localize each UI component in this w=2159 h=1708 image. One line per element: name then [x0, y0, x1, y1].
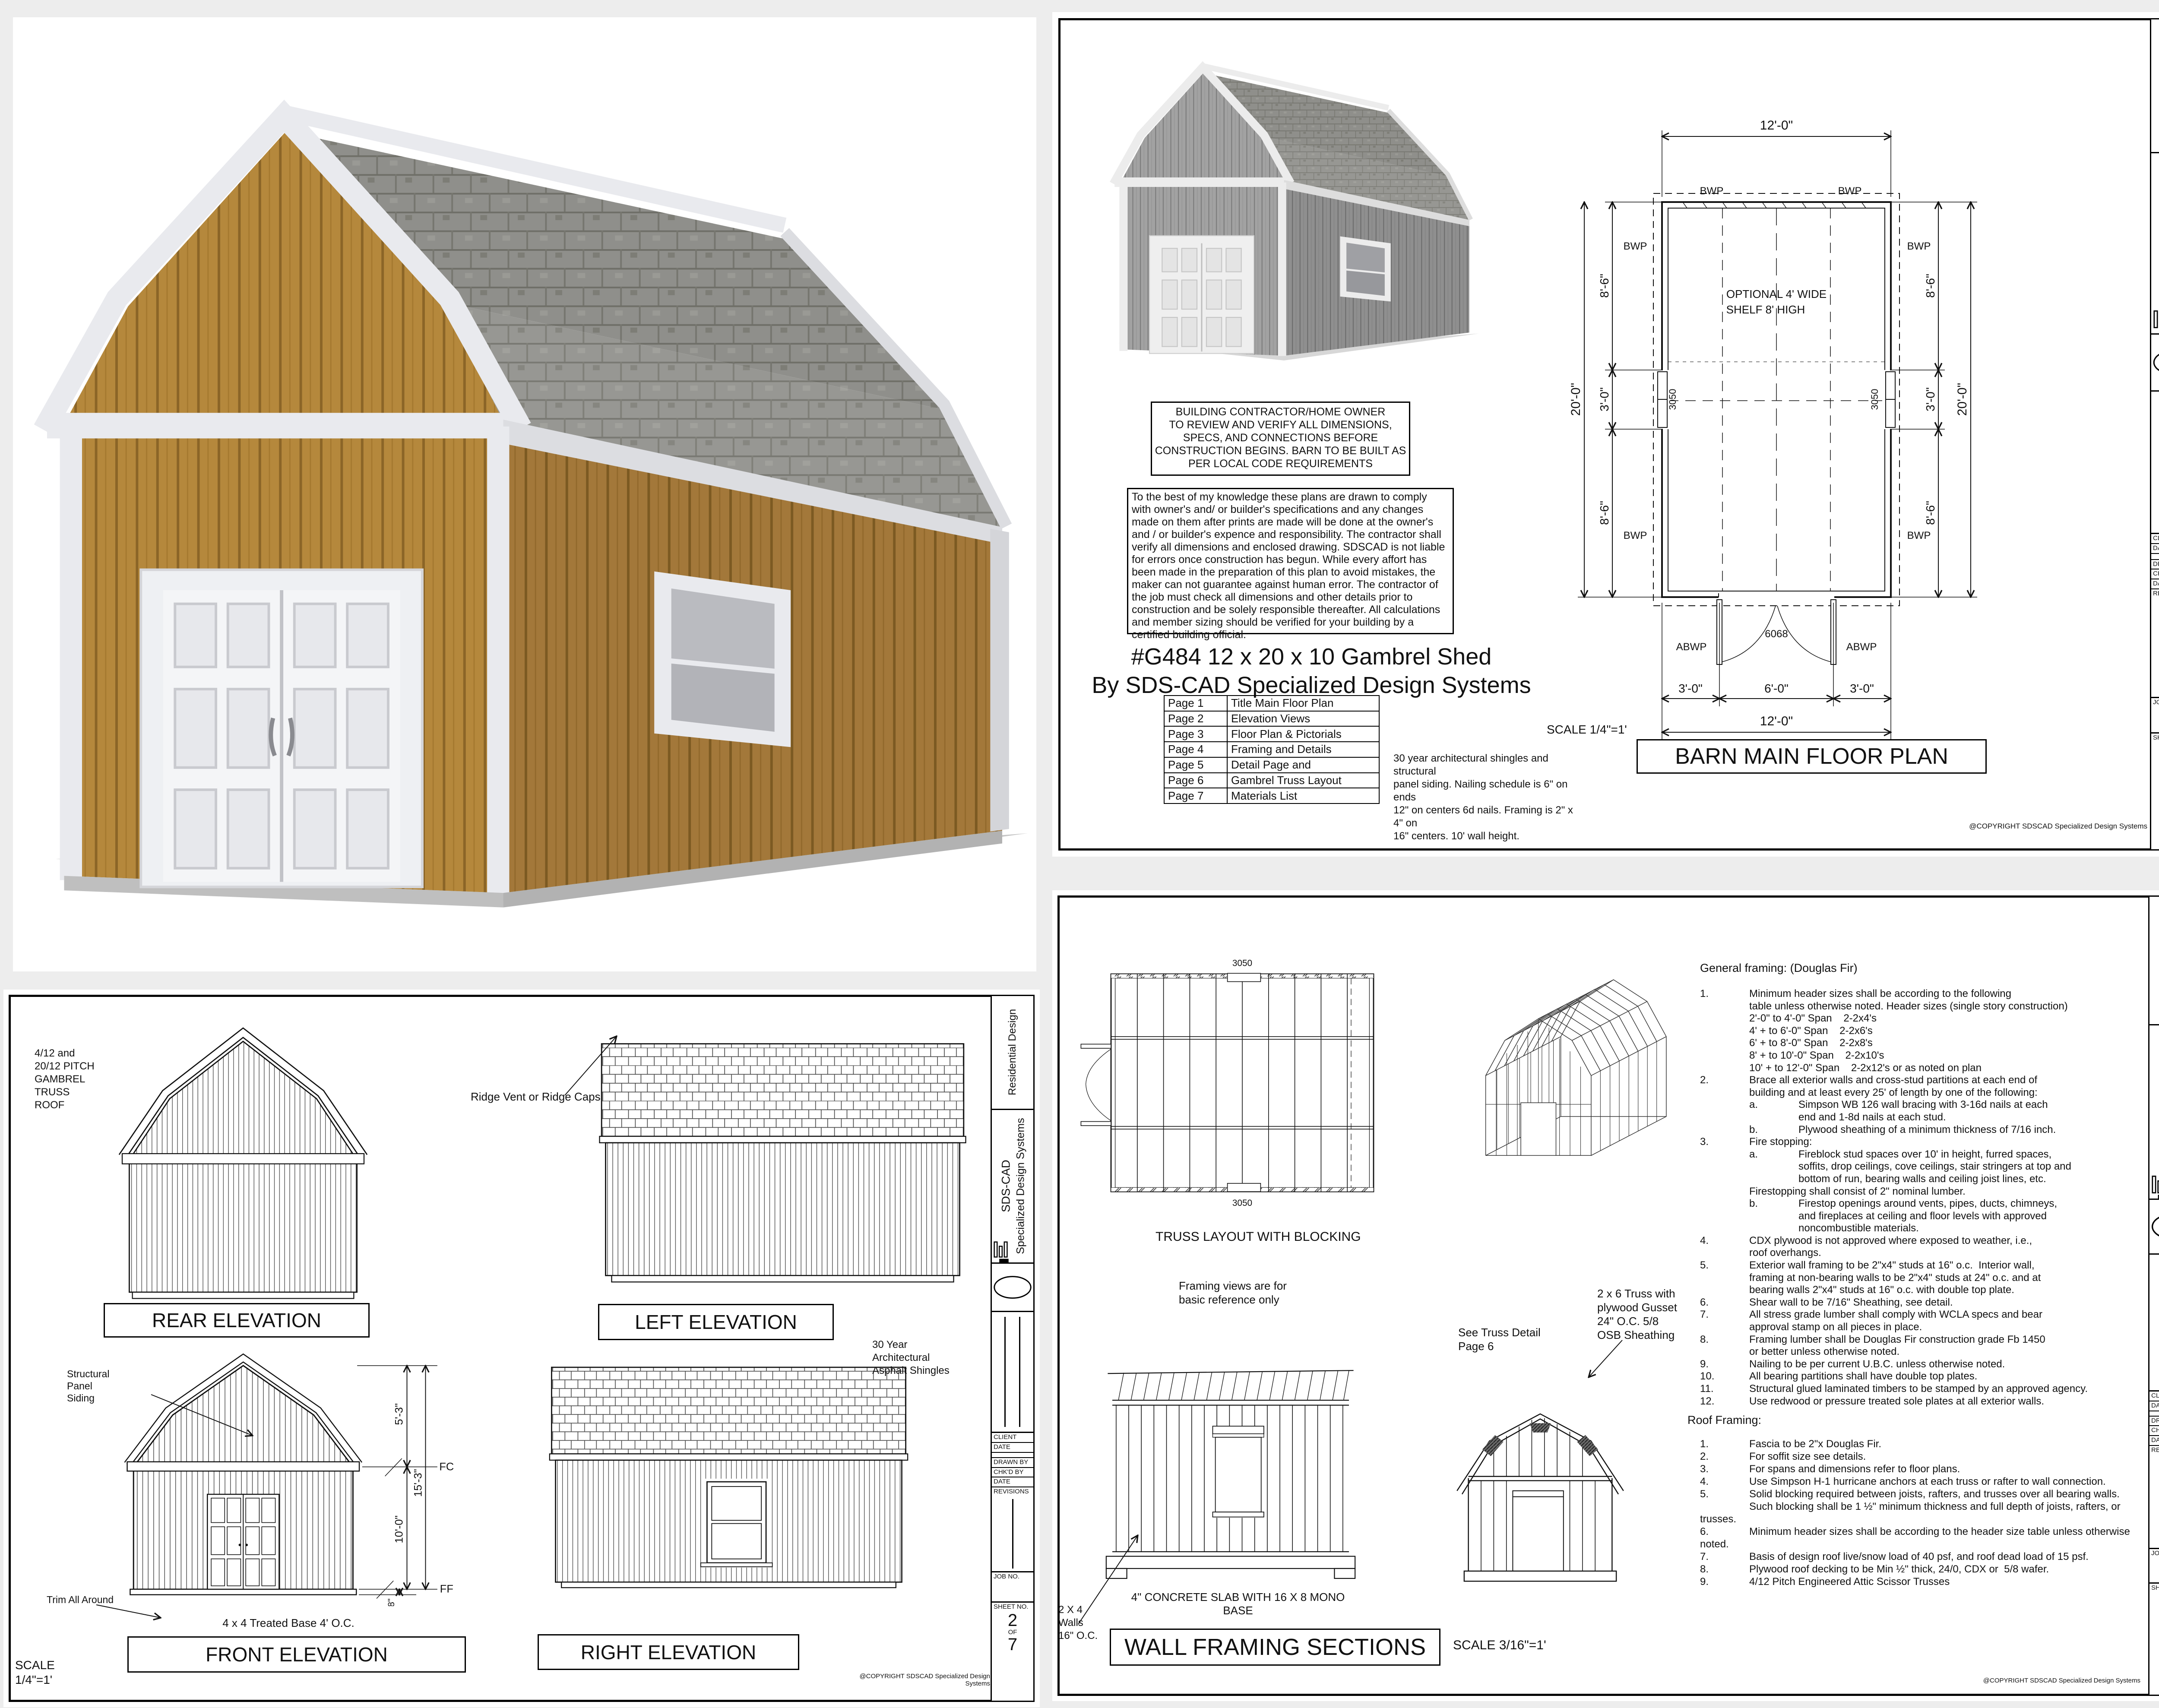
tb-field-client: CLIENT [992, 1433, 1033, 1443]
dim-seg: 8'-6" [1924, 501, 1937, 525]
bwp-label: BWP [1838, 185, 1862, 197]
page-index-row: Page 5 Detail Page and [1164, 757, 1379, 773]
shingle-note: 30 year architectural shingles and struc… [1393, 752, 1575, 843]
tb-field-sheetno: SHEET NO. [2151, 734, 2159, 743]
wall-framing-sections-title: WALL FRAMING SECTIONS [1110, 1629, 1440, 1666]
shelf-note-1: OPTIONAL 4' WIDE [1726, 288, 1827, 300]
right-elevation-label: RIGHT ELEVATION [538, 1634, 799, 1670]
tb-residential-label: Residential Design [1007, 1009, 1019, 1095]
sheet-of: OF [2150, 1610, 2159, 1617]
right-window [701, 1479, 772, 1568]
title-block-sheet2: Residential Design SDS-CAD Specialized D… [991, 995, 1035, 1702]
window-code: 3050 [1869, 389, 1880, 410]
dim-door: 3'-0" [1850, 682, 1874, 695]
window-code: 3050 [1667, 389, 1678, 410]
rear-elevation-drawing [92, 1015, 394, 1318]
plan-title-line1: #G484 12 x 20 x 10 Gambrel Shed [1095, 643, 1527, 670]
tb-field-sheetno: SHEET NO. [992, 1603, 1033, 1612]
copyright-sheet3: @COPYRIGHT SDSCAD Specialized Design Sys… [1950, 1677, 2140, 1684]
page-cell: Page 3 [1164, 726, 1227, 742]
tb-field-client: CLIENT [2151, 534, 2159, 544]
dim-seg: 3'-0" [1924, 387, 1937, 411]
copyright-sheet1: @COPYRIGHT SDSCAD Specialized Design Sys… [1969, 822, 2147, 831]
door-opening [1719, 593, 1834, 603]
page-index-row: Page 4 Framing and Details [1164, 742, 1379, 757]
sheet-number: 1 [2151, 743, 2159, 760]
shelf-note-2: SHELF 8' HIGH [1726, 303, 1805, 316]
sheet-number: 4 [2150, 1592, 2159, 1610]
general-framing-notes: 1. Minimum header sizes shall be accordi… [1700, 988, 2136, 1408]
dim-right-overall: 20'-0" [1955, 383, 1969, 416]
dim-seg: 8'-6" [1924, 274, 1937, 298]
left-elevation-label: LEFT ELEVATION [598, 1304, 834, 1340]
sheet-total: 7 [992, 1636, 1033, 1653]
bwp-label: BWP [1907, 240, 1931, 252]
page-title-cell: Elevation Views [1227, 711, 1379, 727]
render-card [13, 17, 1036, 971]
side-window [654, 572, 791, 747]
dim-seg: 8'-6" [1598, 274, 1611, 298]
tb-field-revisions: REVISIONS [2150, 1446, 2159, 1455]
page-title-cell: Materials List [1227, 788, 1379, 803]
truss-dim-top: 3050 [1232, 958, 1252, 968]
tb-field-drawn: DRAWN BY [992, 1458, 1033, 1468]
page-title-cell: Title Main Floor Plan [1227, 696, 1379, 711]
page-title-cell: Framing and Details [1227, 742, 1379, 757]
sheet-1-title-main-floor-plan: BUILDING CONTRACTOR/HOME OWNER TO REVIEW… [1052, 12, 2159, 857]
tb-field-date2: DATE [2151, 579, 2159, 589]
double-door [141, 570, 422, 887]
gusset-right [1577, 1435, 1598, 1456]
tb-field-job: JOB NO. [992, 1572, 1033, 1581]
tb-fields: CLIENT DATE DRAWN BY CHK'D BY DATE REVIS… [2151, 534, 2159, 698]
structural-panel-note: Structural Panel Siding [67, 1368, 109, 1404]
plan-scale: SCALE 1/4"=1' [1547, 723, 1627, 737]
scale-note-sheet3: SCALE 3/16"=1' [1453, 1638, 1546, 1653]
tb-sheetno: SHEET NO. 1 OF 7 [2151, 734, 2159, 849]
shed-3d-pictorial-gray [1102, 47, 1482, 364]
dim-15-3: 15'-3" [412, 1469, 424, 1497]
dim-8in: 8" [386, 1598, 396, 1606]
page-index-row: Page 6 Gambrel Truss Layout [1164, 773, 1379, 788]
plan-collage: BUILDING CONTRACTOR/HOME OWNER TO REVIEW… [0, 0, 2159, 1708]
contractor-note-box: BUILDING CONTRACTOR/HOME OWNER TO REVIEW… [1151, 402, 1410, 476]
truss-dim-bottom: 3050 [1232, 1198, 1252, 1208]
sds-logo [992, 1239, 1012, 1264]
door-code: 6068 [1765, 628, 1788, 640]
tb-stamp [2151, 335, 2159, 392]
asphalt-shingles-note: 30 Year Architectural Asphalt Shingles [872, 1338, 985, 1377]
shed-3d-render [13, 43, 1036, 933]
copyright-sheet2: @COPYRIGHT SDSCAD Specialized Design Sys… [835, 1673, 990, 1687]
tb-field-drawn: DRAWN BY [2151, 560, 2159, 570]
wall-framing-side-drawing [1086, 1351, 1375, 1588]
corner-trim-far [990, 529, 1009, 832]
dim-door: 6'-0" [1764, 682, 1789, 695]
bwp-label: BWP [1907, 530, 1931, 541]
tb-field-chkd: CHK'D BY [2150, 1426, 2159, 1436]
scale-note-sheet2: SCALE 1/4"=1' [15, 1658, 55, 1687]
page-title-cell: Detail Page and [1227, 757, 1379, 773]
sheet-total: 7 [2150, 1617, 2159, 1634]
title-block-sheet3: Residential Design SDS-CAD Specialized D… [2148, 895, 2159, 1696]
page-cell: Page 2 [1164, 711, 1227, 727]
plan-title-line2: By SDS-CAD Specialized Design Systems [1078, 672, 1545, 699]
stud-walls-note: 2 X 4 Walls 16" O.C. [1058, 1604, 1098, 1642]
tb-brand2: Specialized Design Systems [1015, 1118, 1027, 1254]
wall-framing-end-drawing [1447, 1351, 1633, 1588]
tb-field-revisions: REVISIONS [2151, 589, 2159, 598]
tb-field-date2: DATE [2150, 1436, 2159, 1446]
truss-layout-drawing: 3050 3050 [1078, 946, 1389, 1223]
tb-job: JOB NO. [2151, 698, 2159, 734]
treated-base-note: 4 x 4 Treated Base 4' O.C. [168, 1616, 409, 1630]
sheet-of: OF [2151, 760, 2159, 767]
tb-field-date2: DATE [992, 1477, 1033, 1487]
tb-field-job: JOB NO. [2150, 1549, 2159, 1558]
general-framing-heading: General framing: (Douglas Fir) [1700, 962, 1858, 975]
sheet-number: 2 [992, 1612, 1033, 1629]
tb-brand: SDS-CAD Specialized Design Systems [2151, 153, 2159, 335]
page-cell: Page 7 [1164, 788, 1227, 803]
eave-band-front [47, 413, 518, 438]
dim-seg: 3'-0" [1598, 387, 1611, 411]
bwp-label: BWP [1624, 530, 1647, 541]
page-cell: Page 4 [1164, 742, 1227, 757]
roof-framing-heading: Roof Framing: [1687, 1414, 1761, 1427]
abwp-label: ABWP [1846, 641, 1877, 653]
corner-trim-right [487, 427, 509, 894]
fc-label: FC [439, 1461, 454, 1473]
tb-residential: Residential Design [2151, 19, 2159, 153]
tb-field-chkd: CHK'D BY [992, 1468, 1033, 1478]
tb-field-drawn: DRAWN BY [2150, 1417, 2159, 1426]
corner-trim-left [60, 427, 82, 880]
tb-brand1: SDS-CAD [999, 1160, 1013, 1212]
dim-seg: 8'-6" [1598, 501, 1611, 525]
page-cell: Page 6 [1164, 773, 1227, 788]
tb-field-chkd: CHK'D BY [2151, 569, 2159, 579]
ff-label: FF [440, 1583, 453, 1595]
sds-logo [2150, 1173, 2159, 1200]
floor-plan-drawing: 12'-0" 12'-0" 20'-0" 20'-0" 8'-6" 3'-0" … [1524, 16, 2059, 750]
tb-field-revisions: REVISIONS [992, 1487, 1033, 1496]
slab-note: 4" CONCRETE SLAB WITH 16 X 8 MONO BASE [1126, 1591, 1350, 1617]
title-block-sheet1: Residential Design SDS-CAD Specialized D… [2150, 18, 2159, 851]
tb-field-date: DATE [2150, 1401, 2159, 1411]
tb-field-sheetno: SHEET NO. [2150, 1584, 2159, 1593]
dim-10-0: 10'-0" [393, 1515, 405, 1544]
dim-door: 3'-0" [1678, 682, 1703, 695]
tb-field-date: DATE [992, 1443, 1033, 1453]
trim-note: Trim All Around [47, 1594, 114, 1606]
page-index-row: Page 1 Title Main Floor Plan [1164, 696, 1379, 711]
right-elevation-drawing [522, 1354, 935, 1597]
page-title-cell: Gambrel Truss Layout [1227, 773, 1379, 788]
abwp-label: ABWP [1676, 641, 1707, 653]
page-index-row: Page 2 Elevation Views [1164, 711, 1379, 727]
front-elevation-label: FRONT ELEVATION [127, 1636, 466, 1673]
front-door [207, 1494, 279, 1589]
page-index-table: Page 1 Title Main Floor Plan Page 2 Elev… [1164, 695, 1380, 804]
tb-field-job: JOB NO. [2151, 698, 2159, 707]
page-title-cell: Floor Plan & Pictorials [1227, 726, 1379, 742]
dim-left-overall: 20'-0" [1569, 383, 1583, 416]
page-index-row: Page 7 Materials List [1164, 788, 1379, 803]
page-index-row: Page 3 Floor Plan & Pictorials [1164, 726, 1379, 742]
sds-logo [2152, 308, 2159, 335]
sheet-4-framing-and-details: 3050 3050 TRUSS LAYOUT WITH BLOCKING Fra… [1052, 890, 2159, 1701]
dim-5-3: 5'-3" [393, 1403, 405, 1425]
page-cell: Page 1 [1164, 696, 1227, 711]
disclaimer-box: To the best of my knowledge these plans … [1127, 488, 1454, 634]
gusset-left [1482, 1435, 1504, 1456]
bwp-label: BWP [1624, 240, 1647, 252]
sheet-total: 7 [2151, 767, 2159, 784]
framing-pictorial-3d [1441, 916, 1687, 1184]
dim-top: 12'-0" [1760, 118, 1793, 133]
gusset-peak [1530, 1423, 1551, 1433]
tb-spacer [2151, 392, 2159, 534]
sheet-2-elevation-views: 4/12 and 20/12 PITCH GAMBREL TRUSS ROOF … [3, 990, 1040, 1707]
tb-field-client: CLIENT [2150, 1392, 2159, 1401]
bwp-label: BWP [1700, 185, 1724, 197]
framing-reference-note: Framing views are for basic reference on… [1179, 1279, 1287, 1306]
see-truss-detail-note: See Truss Detail Page 6 [1458, 1325, 1541, 1353]
dim-bottom: 12'-0" [1760, 714, 1793, 728]
page-cell: Page 5 [1164, 757, 1227, 773]
floor-plan-title-box: BARN MAIN FLOOR PLAN [1637, 739, 1987, 774]
left-elevation-drawing [576, 1030, 989, 1295]
roof-framing-notes: 1. Fascia to be 2"x Douglas Fir. 2. For … [1700, 1438, 2138, 1588]
tb-field-date: DATE [2151, 544, 2159, 554]
front-elevation-drawing: 5'-3" 10'-0" 15'-3" 8" FC FF [101, 1328, 507, 1606]
truss-gusset-note: 2 x 6 Truss with plywood Gusset 24" O.C.… [1597, 1287, 1677, 1342]
truss-layout-label: TRUSS LAYOUT WITH BLOCKING [1155, 1230, 1361, 1244]
